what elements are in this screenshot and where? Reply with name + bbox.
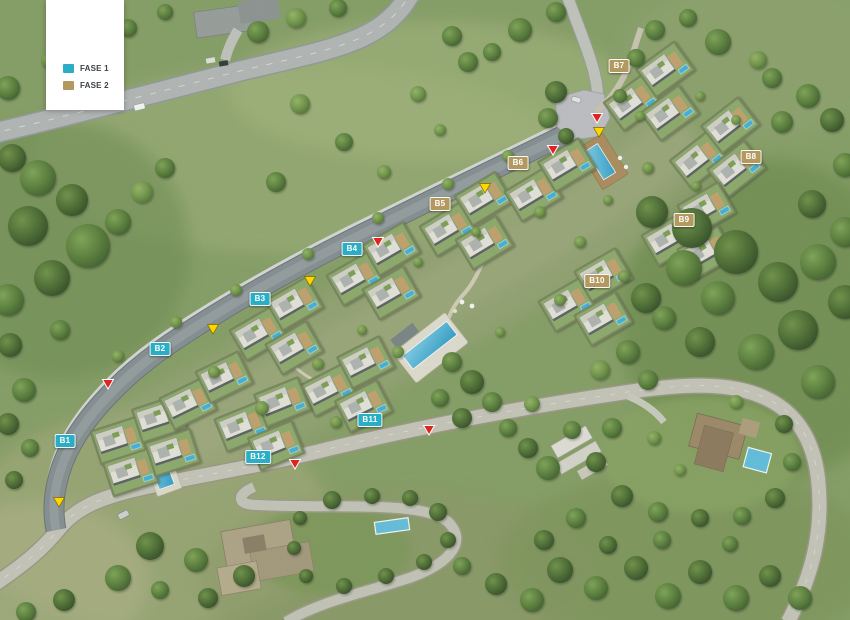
legend: FASE 1 FASE 2 [46, 0, 124, 110]
red-flag-marker [424, 426, 435, 436]
red-flag-marker [103, 380, 114, 390]
yellow-flag-marker [305, 277, 316, 287]
yellow-flag-marker [54, 498, 65, 508]
red-flag-marker [548, 146, 559, 156]
fase-1-label: FASE 1 [80, 64, 109, 73]
red-flag-marker [592, 114, 603, 124]
yellow-flag-marker [208, 325, 219, 335]
legend-item-fase-2: FASE 2 [63, 81, 124, 90]
markers-layer [0, 0, 850, 620]
fase-2-swatch [63, 81, 74, 90]
yellow-flag-marker [594, 128, 605, 138]
red-flag-marker [290, 460, 301, 470]
yellow-flag-marker [480, 184, 491, 194]
legend-item-fase-1: FASE 1 [63, 64, 124, 73]
masterplan-map: B1B2B3B4B5B6B7B8B9B10B11B12 FASE 1 FASE … [0, 0, 850, 620]
red-flag-marker [373, 238, 384, 248]
fase-1-swatch [63, 64, 74, 73]
fase-2-label: FASE 2 [80, 81, 109, 90]
